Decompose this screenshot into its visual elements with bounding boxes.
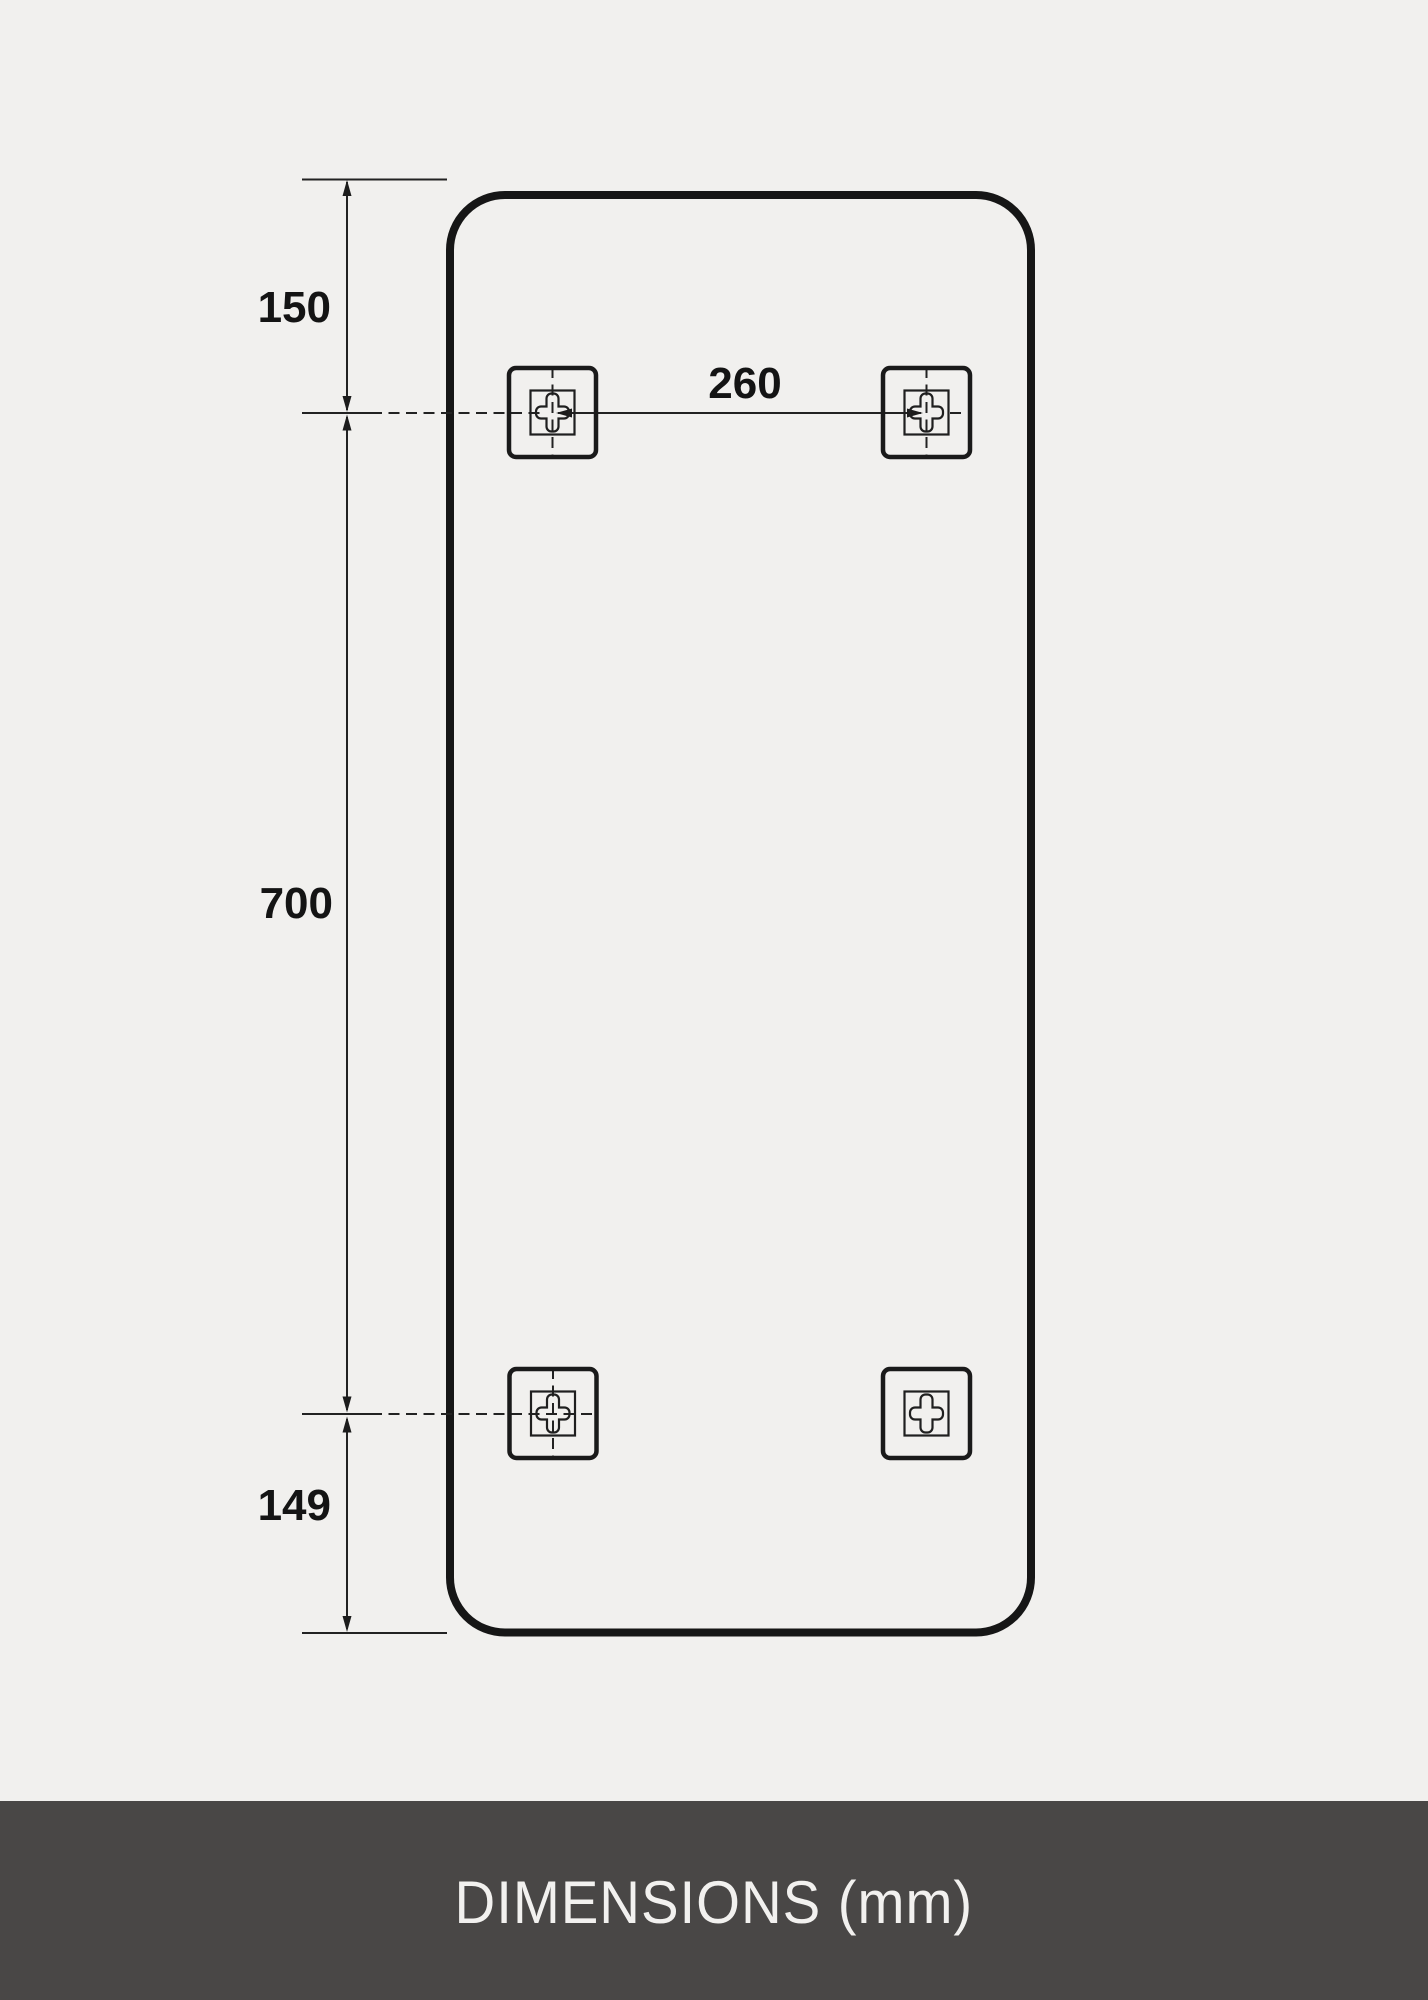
- arrowhead-up-icon: [343, 415, 352, 431]
- footer-bar: DIMENSIONS (mm): [0, 1801, 1428, 2000]
- bracket-outer-square: [883, 1369, 970, 1458]
- dim-label-bottom-offset: 149: [258, 1481, 331, 1530]
- footer-title: DIMENSIONS (mm): [455, 1868, 974, 1937]
- drawing-canvas: 150 260 700 149 DIMENSIONS (mm): [0, 0, 1428, 2000]
- arrowhead-up-icon: [343, 1417, 352, 1433]
- arrowhead-up-icon: [343, 180, 352, 196]
- keyhole-plus-icon: [910, 1395, 943, 1433]
- mount-bracket-bottom-right: [883, 1369, 970, 1458]
- dim-label-top-offset: 150: [258, 283, 331, 332]
- arrowhead-down-icon: [343, 1616, 352, 1632]
- dim-label-hole-spacing-vertical: 700: [260, 879, 333, 928]
- dimension-diagram: 150 260 700 149: [0, 0, 1428, 2000]
- dim-label-hole-spacing-horizontal: 260: [708, 359, 781, 408]
- arrowhead-down-icon: [343, 1397, 352, 1413]
- arrowhead-down-icon: [343, 396, 352, 412]
